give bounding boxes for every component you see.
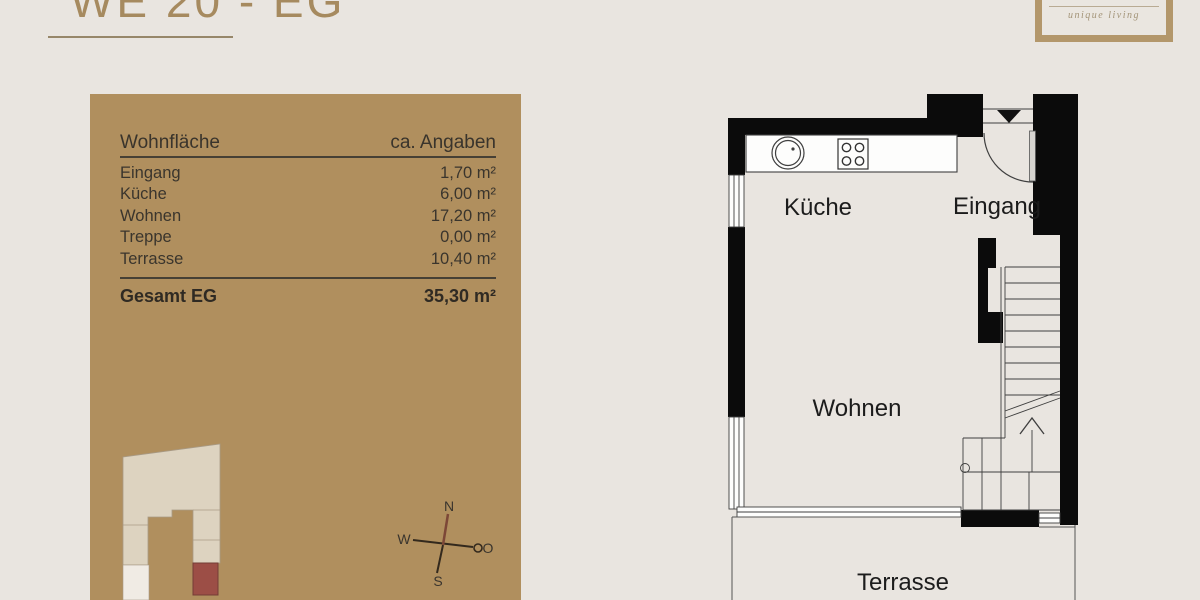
site-plan-building-lower bbox=[123, 565, 149, 600]
compass-south-label: S bbox=[433, 573, 442, 589]
compass-east-label: O bbox=[483, 540, 494, 556]
floor-plan: Küche Eingang Wohnen Terrasse bbox=[700, 80, 1200, 600]
table-row: Terrasse 10,40 m² bbox=[90, 250, 521, 271]
table-row: Treppe 0,00 m² bbox=[90, 228, 521, 249]
row-label: Terrasse bbox=[120, 250, 183, 269]
total-value: 35,30 m² bbox=[424, 286, 496, 307]
stove-icon bbox=[838, 139, 868, 169]
site-plan bbox=[105, 435, 240, 600]
stairs-icon bbox=[961, 267, 1061, 510]
title-underline bbox=[48, 36, 233, 38]
compass-west-label: W bbox=[397, 531, 411, 547]
wall-pier bbox=[961, 510, 1039, 527]
row-value: 1,70 m² bbox=[440, 164, 496, 183]
window-icon bbox=[729, 417, 744, 509]
row-value: 10,40 m² bbox=[431, 250, 496, 269]
compass-north-label: N bbox=[444, 500, 454, 514]
table-header-label: Wohnfläche bbox=[120, 132, 220, 154]
door-leaf bbox=[1030, 131, 1036, 181]
room-label-entrance: Eingang bbox=[953, 193, 1041, 220]
total-label: Gesamt EG bbox=[120, 286, 217, 307]
window-icon bbox=[729, 175, 744, 227]
brand-logo: unique living bbox=[1035, 0, 1173, 42]
door-swing-arc bbox=[984, 133, 1033, 182]
window-icon bbox=[737, 507, 961, 517]
window-icon bbox=[1039, 513, 1060, 523]
room-label-terrace: Terrasse bbox=[857, 569, 949, 596]
row-label: Küche bbox=[120, 185, 167, 204]
logo-divider bbox=[1049, 6, 1159, 7]
table-header-rule bbox=[120, 156, 496, 158]
brand-logo-text: unique living bbox=[1042, 10, 1166, 21]
table-row: Wohnen 17,20 m² bbox=[90, 207, 521, 228]
site-plan-highlighted-unit bbox=[193, 563, 218, 595]
site-plan-building bbox=[123, 444, 220, 565]
table-row: Küche 6,00 m² bbox=[90, 185, 521, 206]
area-summary-panel: Wohnfläche ca. Angaben Eingang 1,70 m² K… bbox=[90, 94, 521, 600]
newel-post-icon bbox=[961, 464, 970, 473]
page-title: WE 20 - EG bbox=[70, 0, 345, 28]
table-row: Eingang 1,70 m² bbox=[90, 164, 521, 185]
row-value: 17,20 m² bbox=[431, 207, 496, 226]
room-label-kitchen: Küche bbox=[784, 194, 852, 221]
row-value: 0,00 m² bbox=[440, 228, 496, 247]
entrance-door bbox=[983, 109, 1036, 182]
entrance-arrow-icon bbox=[997, 110, 1021, 123]
table-header-value: ca. Angaben bbox=[390, 132, 496, 154]
row-value: 6,00 m² bbox=[440, 185, 496, 204]
row-label: Treppe bbox=[120, 228, 172, 247]
table-total-rule bbox=[120, 277, 496, 279]
row-label: Wohnen bbox=[120, 207, 181, 226]
page: WE 20 - EG unique living Wohnfläche ca. … bbox=[0, 0, 1200, 600]
kitchen-counter bbox=[746, 135, 957, 172]
compass-icon: N W O S bbox=[395, 500, 495, 595]
row-label: Eingang bbox=[120, 164, 181, 183]
room-label-living: Wohnen bbox=[813, 395, 902, 422]
